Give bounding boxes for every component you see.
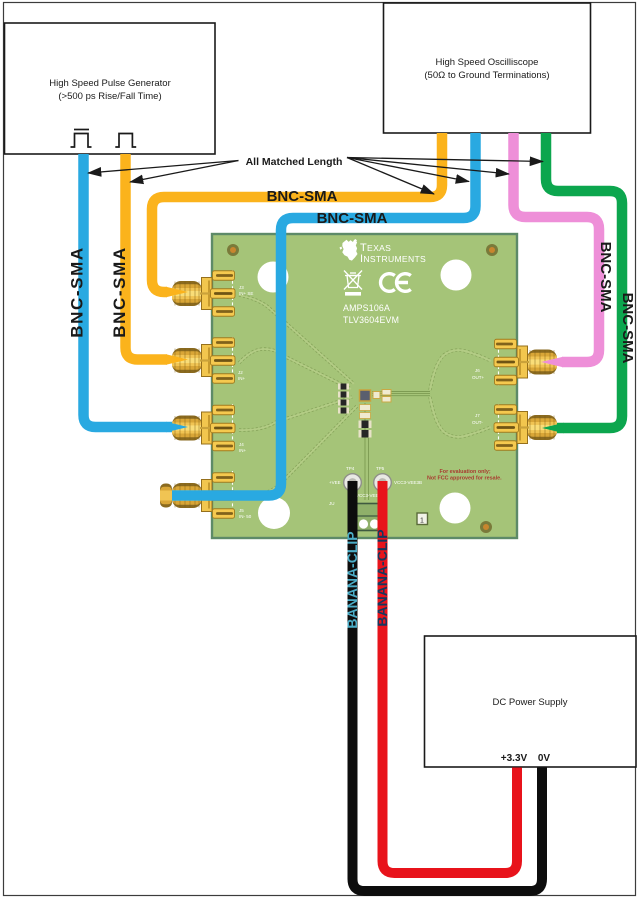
svg-text:J3: J3 <box>239 285 244 290</box>
svg-text:0V: 0V <box>538 753 551 764</box>
svg-text:J4: J4 <box>239 442 244 447</box>
svg-text:TP5: TP5 <box>376 466 385 471</box>
svg-text:TLV3604EVM: TLV3604EVM <box>343 315 399 325</box>
svg-text:BNC-SMA: BNC-SMA <box>68 246 87 337</box>
svg-text:J2: J2 <box>238 370 243 375</box>
svg-text:All Matched Length: All Matched Length <box>246 156 343 168</box>
svg-text:BNC-SMA: BNC-SMA <box>317 210 388 227</box>
svg-text:DC Power Supply: DC Power Supply <box>493 697 568 708</box>
svg-text:VCC3-VEE3B: VCC3-VEE3B <box>394 480 422 485</box>
svg-text:JU: JU <box>329 501 335 506</box>
svg-text:IN+: IN+ <box>238 376 246 381</box>
svg-text:High Speed Pulse Generator: High Speed Pulse Generator <box>49 78 170 89</box>
svg-text:+VEE: +VEE <box>329 480 341 485</box>
svg-text:TEXAS: TEXAS <box>360 242 391 254</box>
svg-text:TP4: TP4 <box>346 466 355 471</box>
svg-text:1: 1 <box>420 518 424 525</box>
svg-text:Not FCC approved for resale.: Not FCC approved for resale. <box>427 476 502 482</box>
svg-text:(50Ω to Ground Terminations): (50Ω to Ground Terminations) <box>424 70 549 81</box>
svg-text:BNC-SMA: BNC-SMA <box>597 242 614 313</box>
svg-text:AMPS106A: AMPS106A <box>343 303 390 313</box>
svg-text:+3.3V: +3.3V <box>501 753 528 764</box>
svg-text:(>500 ps Rise/Fall Time): (>500 ps Rise/Fall Time) <box>58 91 161 102</box>
svg-text:BNC-SMA: BNC-SMA <box>619 293 636 364</box>
svg-text:BNC-SMA: BNC-SMA <box>267 188 338 205</box>
svg-text:J6: J6 <box>475 368 480 373</box>
svg-text:BANANA-CLIP: BANANA-CLIP <box>344 531 360 628</box>
svg-text:High Speed Oscilliscope: High Speed Oscilliscope <box>436 57 539 68</box>
svg-text:OUT+: OUT+ <box>472 375 484 380</box>
svg-text:IN+ SE: IN+ SE <box>239 291 253 296</box>
svg-text:IN- 50: IN- 50 <box>239 514 252 519</box>
svg-text:INSTRUMENTS: INSTRUMENTS <box>360 253 426 265</box>
svg-text:IN+: IN+ <box>239 448 247 453</box>
svg-text:BNC-SMA: BNC-SMA <box>110 246 129 337</box>
svg-text:J5: J5 <box>239 508 244 513</box>
svg-text:For evaluation only;: For evaluation only; <box>440 469 491 475</box>
svg-text:J7: J7 <box>475 413 480 418</box>
svg-text:BANANA-CLIP: BANANA-CLIP <box>374 529 390 626</box>
svg-text:OUT-: OUT- <box>472 420 483 425</box>
